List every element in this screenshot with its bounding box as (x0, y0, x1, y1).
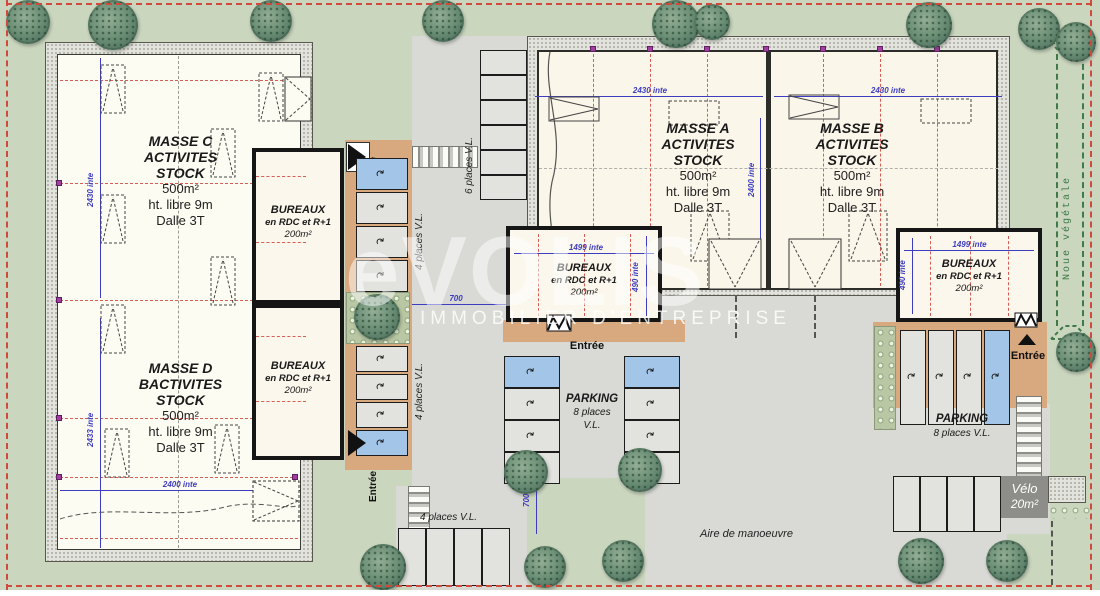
entrance-label: Entrée (368, 458, 379, 502)
parking-space-handicap: ↷ (984, 330, 1010, 425)
grid-line (60, 538, 298, 539)
dimension-label: 2430 inte (87, 150, 95, 230)
tree (250, 0, 292, 42)
masse-b-height: ht. libre 9m (782, 184, 922, 200)
parking-space: ↷ (624, 388, 680, 420)
tree (694, 4, 730, 40)
tree (898, 538, 944, 584)
masse-a-line2: ACTIVITES (628, 136, 768, 152)
column-marker (56, 474, 62, 480)
bureaux-title: BUREAUX (906, 258, 1032, 271)
watermark-tagline: IMMOBILIER D'ENTREPRISE (420, 308, 780, 330)
velo-label: Vélo (1001, 481, 1048, 497)
parking-space (480, 125, 527, 150)
grid-line (256, 242, 306, 243)
parking-space (480, 150, 527, 175)
car-arrow-icon: ↷ (645, 397, 659, 411)
parking-space (947, 476, 974, 532)
masse-d-line2: BACTIVITES (103, 376, 258, 392)
parking-space: ↷ (504, 420, 560, 452)
column-marker (590, 46, 596, 52)
masse-a-label: MASSE A ACTIVITES STOCK 500m² ht. libre … (628, 120, 768, 216)
aire-label: Aire de manoeuvre (700, 528, 830, 540)
utility-structure (1048, 476, 1086, 503)
grid-line (256, 336, 306, 337)
site-boundary-bottom (6, 585, 1092, 587)
skylight-icon (210, 256, 236, 306)
site-boundary-left (6, 0, 8, 590)
masse-d-line1: MASSE D (103, 360, 258, 376)
parking-space: ↷ (624, 420, 680, 452)
parking-space (482, 528, 510, 586)
masse-b-label: MASSE B ACTIVITES STOCK 500m² ht. libre … (782, 120, 922, 216)
masse-c-area: 500m² (103, 181, 258, 197)
car-arrow-icon: ↷ (525, 365, 539, 379)
parking-space: ↷ (504, 388, 560, 420)
column-marker (877, 46, 883, 52)
dimension-line (904, 250, 1034, 251)
parking-space (426, 528, 454, 586)
tree (618, 448, 662, 492)
bureaux-floors: en RDC et R+1 (256, 217, 340, 229)
tree (602, 540, 644, 582)
car-arrow-icon: ↷ (525, 429, 539, 443)
velo-area: 20m² (1001, 497, 1048, 511)
crosswalk (408, 486, 430, 532)
car-arrow-icon: ↷ (906, 370, 920, 384)
tree (360, 544, 406, 590)
terrain-line (60, 495, 300, 525)
masse-d-area: 500m² (103, 408, 258, 424)
masse-b-slab: Dalle 3T (782, 200, 922, 216)
stair-strip (1016, 396, 1042, 478)
door-axis (814, 296, 816, 338)
parking-space (974, 476, 1001, 532)
parking-space-handicap: ↷ (356, 158, 408, 190)
parking-space (480, 100, 527, 125)
column-marker (56, 297, 62, 303)
masse-a-line1: MASSE A (628, 120, 768, 136)
parking-title: PARKING (562, 392, 622, 406)
axis-line (178, 56, 179, 548)
parking-space-handicap: ↷ (504, 356, 560, 388)
column-marker (704, 46, 710, 52)
masse-c-line1: MASSE C (103, 133, 258, 149)
parking-right-count: 8 places V.L. (916, 427, 1008, 440)
column-marker (763, 46, 769, 52)
column-marker (647, 46, 653, 52)
parking-space: ↷ (956, 330, 982, 425)
bureaux-west-lower-label: BUREAUX en RDC et R+1 200m² (256, 360, 340, 397)
bureaux-floors: en RDC et R+1 (906, 271, 1032, 283)
masse-c-label: MASSE C ACTIVITES STOCK 500m² ht. libre … (103, 133, 258, 229)
parking-space (920, 476, 947, 532)
bureaux-title: BUREAUX (256, 204, 340, 217)
parking-space-handicap: ↷ (624, 356, 680, 388)
places4-label: 4 places V.L. (414, 328, 425, 420)
parking-space: ↷ (900, 330, 926, 425)
car-arrow-icon: ↷ (375, 352, 389, 366)
car-arrow-icon: ↷ (990, 370, 1004, 384)
dimension-label: 2430 inte (843, 87, 933, 95)
column-marker (820, 46, 826, 52)
parking-space (480, 175, 527, 200)
places4-label: 4 places V.L. (420, 512, 512, 523)
entrance-wedge-icon (348, 430, 366, 456)
tree (504, 450, 548, 494)
entrance-label: Entrée (1006, 350, 1050, 362)
bureaux-west-upper: BUREAUX en RDC et R+1 200m² (252, 148, 344, 304)
masse-d-height: ht. libre 9m (103, 424, 258, 440)
dimension-label: 2430 inte (605, 87, 695, 95)
parking-central-label: PARKING 8 places V.L. (562, 392, 622, 432)
parking-space: ↷ (356, 374, 408, 400)
parking-space (480, 75, 527, 100)
tree (986, 540, 1028, 582)
entrance-arrow-icon (1018, 334, 1036, 345)
masse-d-slab: Dalle 3T (103, 440, 258, 456)
parking-space (480, 50, 527, 75)
column-marker (56, 415, 62, 421)
bureaux-west-upper-label: BUREAUX en RDC et R+1 200m² (256, 204, 340, 241)
grid-line (60, 477, 298, 478)
masse-c-line3: STOCK (103, 165, 258, 181)
site-boundary-right (1090, 0, 1092, 590)
masse-b-area: 500m² (782, 168, 922, 184)
tree (906, 2, 952, 48)
masse-a-line3: STOCK (628, 152, 768, 168)
column-marker (56, 180, 62, 186)
tree (88, 0, 138, 50)
sectional-door-icon (548, 96, 600, 122)
bureaux-title: BUREAUX (256, 360, 340, 373)
parking-right-title: PARKING (922, 412, 1002, 426)
parking-space (454, 528, 482, 586)
masse-b-line2: ACTIVITES (782, 136, 922, 152)
bureaux-west-lower: BUREAUX en RDC et R+1 200m² (252, 304, 344, 460)
sheet-margin (0, 590, 1100, 596)
masse-d-label: MASSE D BACTIVITES STOCK 500m² ht. libre… (103, 360, 258, 456)
loading-door-icon (788, 238, 842, 290)
car-arrow-icon: ↷ (375, 436, 389, 450)
dimension-label: 2433 inte (87, 390, 95, 470)
masse-c-height: ht. libre 9m (103, 197, 258, 213)
car-arrow-icon: ↷ (375, 380, 389, 394)
grid-line (256, 176, 306, 177)
places6-label: 6 places V.L. (464, 104, 475, 194)
loading-door-icon (708, 238, 762, 290)
parking-space (893, 476, 920, 532)
bureaux-area: 200m² (256, 385, 340, 397)
parking-space: ↷ (928, 330, 954, 425)
car-arrow-icon: ↷ (645, 429, 659, 443)
tree (422, 0, 464, 42)
masse-c-line2: ACTIVITES (103, 149, 258, 165)
parking-space: ↷ (356, 402, 408, 428)
noue-line-left (1056, 54, 1058, 326)
noue-label: Noue végétale (1062, 130, 1073, 280)
bureaux-east-label: BUREAUX en RDC et R+1 200m² (906, 258, 1032, 295)
parking-space: ↷ (356, 346, 408, 372)
dimension-label: 1499 inte (932, 241, 1007, 249)
bureaux-area: 200m² (256, 229, 340, 241)
bureaux-area: 200m² (906, 283, 1032, 295)
noue-line-right (1082, 54, 1084, 326)
masse-c-slab: Dalle 3T (103, 213, 258, 229)
masse-a-slab: Dalle 3T (628, 200, 768, 216)
tree (6, 0, 50, 44)
car-arrow-icon: ↷ (375, 167, 389, 181)
site-plan: Noue végétale 2430 inte 2433 inte 2400 i… (0, 0, 1100, 596)
tree (1018, 8, 1060, 50)
site-boundary-top (6, 3, 1092, 5)
planting-bed (874, 326, 896, 430)
entrance-label: Entrée (552, 340, 622, 352)
skylight-icon (848, 210, 888, 262)
watermark-logo: eVOLIS (345, 222, 706, 320)
masse-d-line3: STOCK (103, 392, 258, 408)
car-arrow-icon: ↷ (375, 201, 389, 215)
car-arrow-icon: ↷ (375, 408, 389, 422)
axis-line (539, 168, 998, 169)
velo-shelter: Vélo 20m² (1001, 476, 1048, 518)
skylight-icon (100, 304, 126, 354)
car-arrow-icon: ↷ (962, 370, 976, 384)
skylight-icon (258, 72, 284, 122)
dimension-label: 2400 inte (140, 481, 220, 489)
car-arrow-icon: ↷ (645, 365, 659, 379)
entrance-door-icon (1014, 312, 1038, 328)
tree (652, 0, 700, 48)
grid-line (256, 401, 306, 402)
car-arrow-icon: ↷ (934, 370, 948, 384)
masse-a-area: 500m² (628, 168, 768, 184)
car-arrow-icon: ↷ (525, 397, 539, 411)
sectional-door-icon (284, 76, 312, 122)
shrub-row (1048, 505, 1093, 519)
skylight-icon (920, 98, 972, 124)
parking-count: 8 places (562, 406, 622, 419)
sectional-door-icon (788, 94, 840, 120)
tree (524, 546, 566, 588)
masse-b-line1: MASSE B (782, 120, 922, 136)
bureaux-floors: en RDC et R+1 (256, 373, 340, 385)
parking-type: V.L. (562, 419, 622, 432)
masse-b-line3: STOCK (782, 152, 922, 168)
skylight-icon (100, 64, 126, 114)
masse-a-height: ht. libre 9m (628, 184, 768, 200)
limit-line (1051, 521, 1053, 585)
